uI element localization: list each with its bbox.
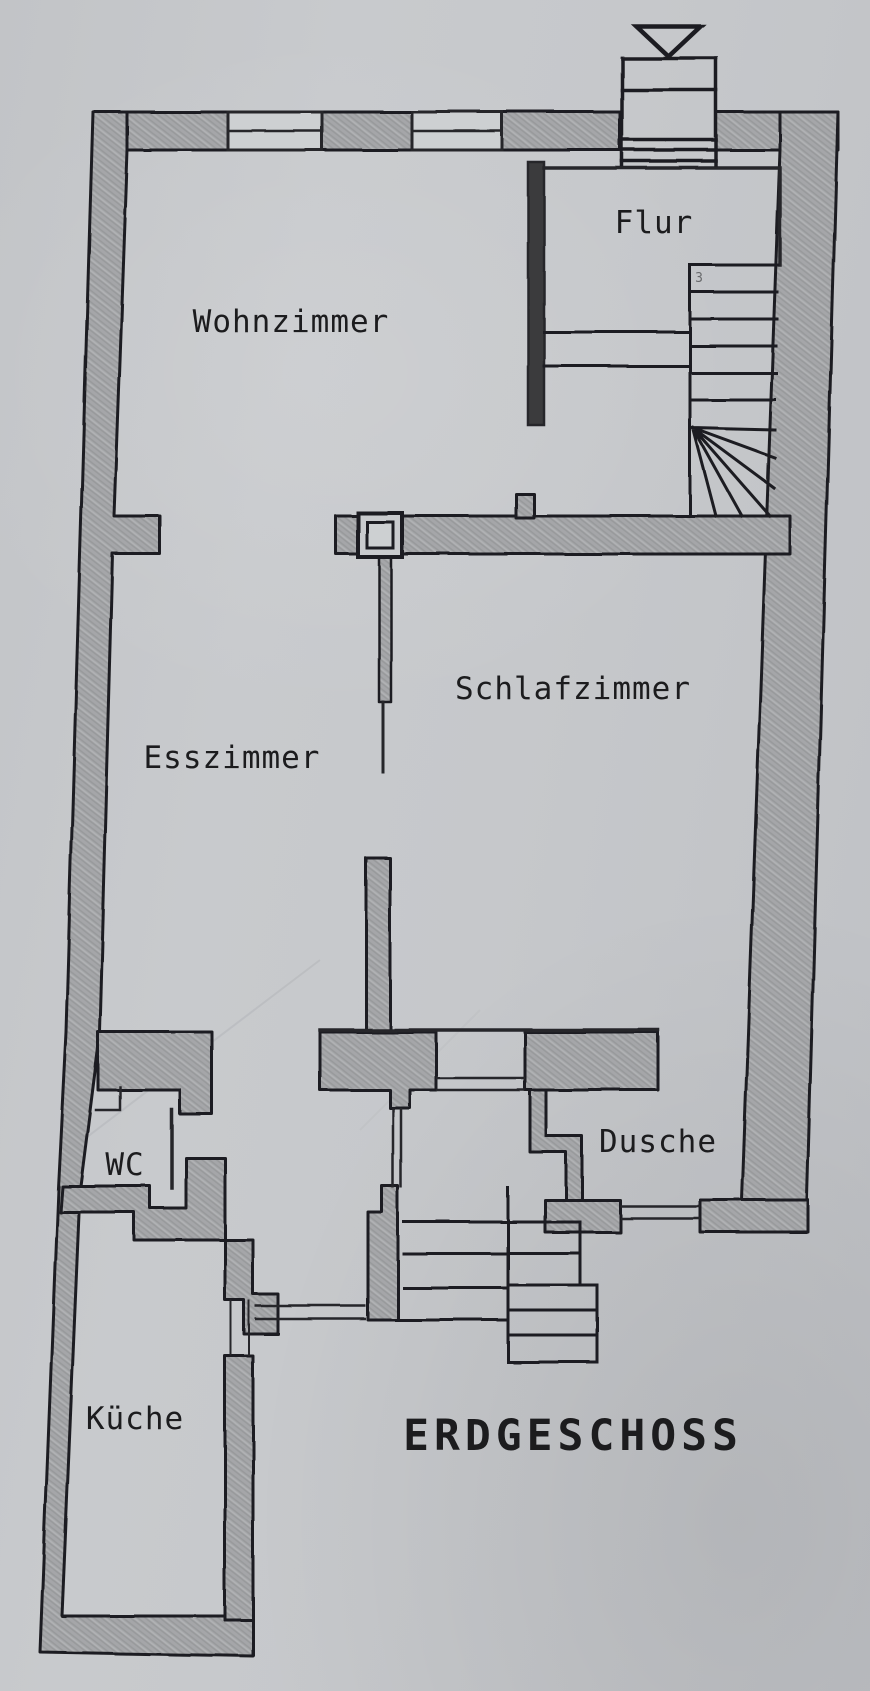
corridor-treads [398,1222,508,1320]
wall-corridor-bar [368,1186,398,1320]
entrance-steps [622,26,716,165]
wall-dusche-bottom-right [700,1200,808,1232]
floor-title: ERDGESCHOSS [403,1411,743,1461]
entrance-marker-icon [636,26,700,56]
wall-lower-right-block [525,1032,658,1090]
floorplan-canvas: Flur Wohnzimmer Schlafzimmer Esszimmer W… [0,0,870,1691]
wall-wc-top [98,1032,212,1114]
room-label-schlafzimmer: Schlafzimmer [455,671,691,707]
wall-divider-bar [366,858,390,1032]
staircase-upper [544,265,778,516]
entrance-steps-treads [622,58,716,161]
room-label-flur: Flur [615,205,694,241]
chimney [358,513,402,557]
wall-dusche-bottom-left [545,1200,620,1232]
room-label-esszimmer: Esszimmer [144,740,321,776]
room-label-wohnzimmer: Wohnzimmer [193,304,390,340]
room-label-wc: WC [105,1147,144,1183]
paper-background: Flur Wohnzimmer Schlafzimmer Esszimmer W… [0,0,870,1691]
stair-landing-lines [544,332,690,366]
wall-top-2 [322,112,412,150]
stair-winder-fan [693,428,775,516]
wall-dusche-left-step [530,1090,582,1200]
wall-top-3 [502,112,620,150]
wall-flur-partition [528,162,544,425]
stair-tread-number: 3 [695,271,703,286]
wall-kitchen-right-lower [225,1356,253,1620]
room-label-kueche: Küche [86,1401,184,1437]
wall-lower-left-block [320,1032,436,1108]
wall-divider-thin [379,554,391,702]
wall-right-exterior [742,112,838,1232]
exit-steps-lower [508,1285,597,1362]
stair-treads [690,265,778,400]
wall-middle [336,516,790,554]
door-threshold-lines [231,1078,700,1356]
room-label-dusche: Dusche [599,1124,717,1160]
door-dusche-threshold [620,1206,700,1218]
door-corridor [393,1108,401,1188]
chimney-flue [367,522,393,548]
room-labels: Flur Wohnzimmer Schlafzimmer Esszimmer W… [86,205,717,1437]
wall-stub-partition-foot [516,494,534,518]
door-esszimmer-pass [436,1078,525,1090]
